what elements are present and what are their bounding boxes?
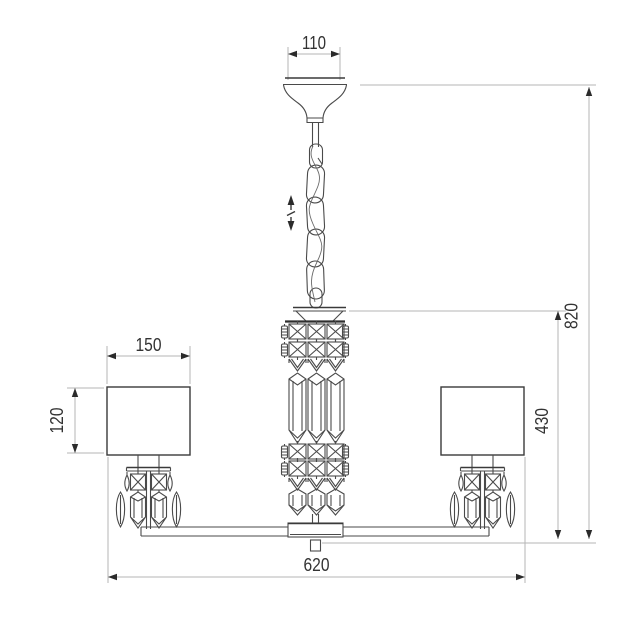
- canopy-stem: [313, 123, 319, 148]
- dim-label-shade-height: 120: [47, 408, 67, 434]
- right-arm-bar: [343, 527, 489, 536]
- ceiling-canopy: [283, 78, 347, 147]
- suspension-chain: [306, 144, 325, 308]
- dim-arrow-right: [331, 51, 340, 57]
- dim-arrow-left: [108, 574, 117, 580]
- right-lamp-shade: [441, 387, 524, 455]
- dim-arrow-right: [516, 574, 525, 580]
- dim-arrow-top: [555, 311, 561, 320]
- dim-label-overall-height: 820: [562, 303, 582, 329]
- dim-shade-width: 150: [107, 335, 190, 384]
- dim-arrow-right: [181, 353, 190, 359]
- right-crystal-cluster: [450, 455, 514, 528]
- dim-arrow-bottom: [72, 444, 78, 453]
- frame-arms: [141, 471, 489, 551]
- central-crystal-column: [282, 308, 349, 516]
- bottom-finial: [311, 540, 321, 551]
- dim-arrow-left: [288, 51, 297, 57]
- hub-stem: [313, 514, 319, 523]
- power-cord: [309, 146, 322, 302]
- dim-body-height: 430: [349, 311, 566, 539]
- height-adjustable-icon: [287, 195, 295, 231]
- dim-label-body-height: 430: [532, 408, 552, 434]
- dim-arrow-top: [72, 388, 78, 397]
- dim-arrow-bottom: [586, 530, 592, 539]
- left-arm-bar: [141, 527, 288, 536]
- left-lamp-shade: [107, 387, 190, 455]
- dim-arrow-left: [107, 353, 116, 359]
- dim-label-total-width: 620: [304, 555, 330, 575]
- dim-label-shade-width: 150: [136, 335, 162, 355]
- dim-shade-height: 120: [47, 388, 104, 453]
- chandelier-dimension-drawing: 110: [0, 0, 630, 630]
- dim-overall-height: 820: [322, 85, 596, 543]
- dim-canopy-width: 110: [288, 33, 340, 80]
- dim-arrow-top: [586, 87, 592, 96]
- right-arm-riser: [481, 471, 485, 529]
- dim-arrow-bottom: [555, 530, 561, 539]
- left-arm-riser: [147, 471, 151, 529]
- dim-label-canopy-width: 110: [302, 33, 326, 53]
- left-crystal-cluster: [116, 455, 180, 528]
